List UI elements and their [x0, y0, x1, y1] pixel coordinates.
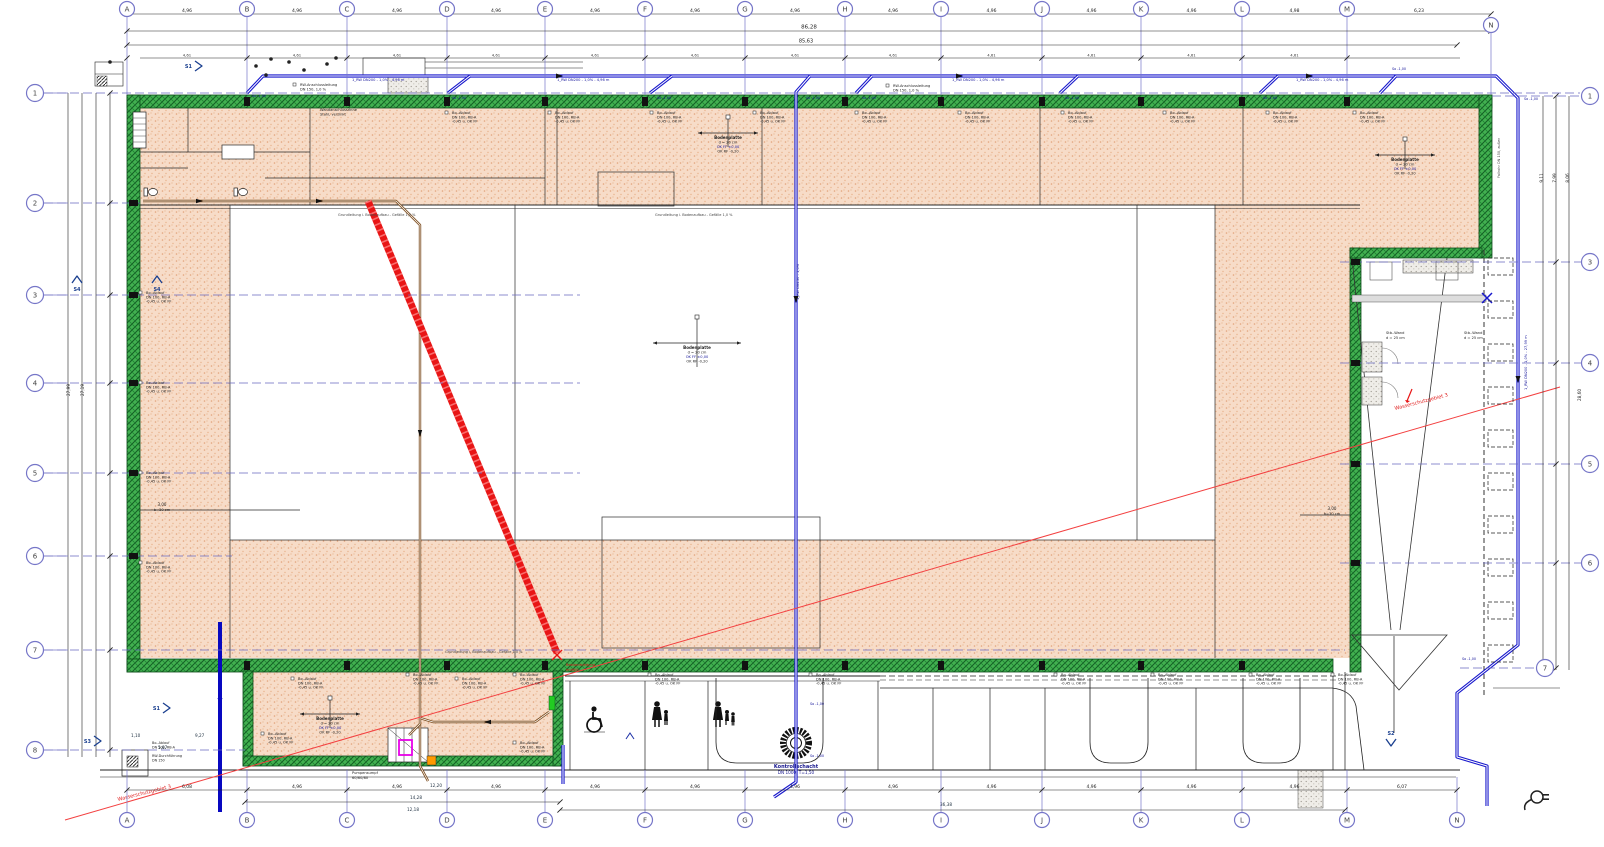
protection-zone-label: Wasserschutzgebiet 3: [117, 784, 172, 803]
wall-column: [444, 97, 450, 106]
dim-text: 4,96: [392, 8, 402, 14]
wall-column: [129, 292, 138, 298]
svg-text:DN 150: DN 150: [152, 759, 165, 763]
dim-text: OK RF -0,20: [319, 731, 341, 735]
svg-text:RW-Durchführung: RW-Durchführung: [152, 754, 182, 758]
grid-label: 1: [33, 90, 37, 98]
wall-column: [938, 97, 944, 106]
dim-text: 4,96: [986, 784, 996, 790]
dashed-bay-outline: [1488, 301, 1513, 318]
slab-label: Bodenplatte: [683, 345, 711, 350]
note-anchor: [648, 673, 651, 676]
note-text: -0,45 u. OK FF: [1068, 120, 1093, 124]
grid-label: M: [1344, 6, 1350, 14]
section-label: S1: [185, 64, 193, 70]
note-text: -0,45 u. OK FF: [462, 686, 487, 690]
pipe-label: 1_RW DN200 - 1,0% - 4,96 m: [352, 78, 405, 82]
wall-column: [642, 97, 648, 106]
svg-text:Grundleitung i. Bodenaufbau -: Grundleitung i. Bodenaufbau - Gefälle 1,…: [445, 650, 523, 654]
wheelchair-icon: [584, 706, 605, 732]
slab-annotation: [695, 315, 699, 319]
dim-text: 4,96: [1289, 784, 1299, 790]
dashed-bay-outline: [1488, 430, 1513, 447]
section-marker-S3: [94, 736, 101, 746]
invert-level-label: So -1,00: [862, 96, 876, 100]
grid-label: 8: [33, 747, 37, 755]
wall-column: [1039, 97, 1045, 106]
dim-text: 4,96: [1086, 784, 1096, 790]
grid-label: C: [345, 6, 350, 14]
note-anchor: [139, 561, 142, 564]
dim-text: 4,96: [1086, 8, 1096, 14]
note-text: -0,45 u. OK FF: [1338, 682, 1363, 686]
dim-text: 4,61: [591, 53, 600, 58]
note-anchor: [1151, 673, 1154, 676]
pipe-label: 1_RW DN200 - 1,0% - 4,96 m: [1296, 78, 1349, 82]
svg-text:d = 25 cm: d = 25 cm: [1386, 336, 1405, 340]
dim-text: 27,19: [80, 384, 85, 396]
dim-text: 7,99: [1552, 173, 1557, 183]
dim-text: 4,61: [183, 53, 192, 58]
dim-text: 12,20: [430, 783, 442, 788]
note-anchor: [855, 111, 858, 114]
wall-column: [842, 97, 848, 106]
note-anchor: [1163, 111, 1166, 114]
dim-text: 4,96: [590, 784, 600, 790]
grid-label: L: [1240, 6, 1244, 14]
dim-text: 27,99: [66, 384, 71, 396]
dim-text: 4,61: [1290, 53, 1299, 58]
slab-annotation: [1403, 137, 1407, 141]
wall-bottom: [127, 659, 1333, 672]
note-text: -0,45 u. OK FF: [268, 741, 293, 745]
slab-annotation: [726, 115, 730, 119]
rw-pipe-branch-core: [448, 76, 470, 93]
dim-text: 4,61: [293, 53, 302, 58]
note-anchor: [958, 111, 961, 114]
note-text: -0,45 u. OK FF: [298, 686, 323, 690]
section-label: S1: [153, 706, 161, 712]
note-text: DN 150, 1,0 %: [300, 87, 327, 91]
grid-label: 6: [1588, 560, 1593, 568]
rw-pipe-branch-core: [856, 76, 872, 93]
rw-pipe-branch-core: [650, 76, 672, 93]
svg-text:Stahl, verzinkt: Stahl, verzinkt: [320, 113, 347, 117]
dim-text: 4,61: [492, 53, 501, 58]
wall-column: [1351, 360, 1360, 366]
grid-label: 4: [33, 380, 38, 388]
plug-icon: [1525, 791, 1549, 810]
note-text: -0,45 u. OK FF: [452, 120, 477, 124]
grid-label: E: [543, 6, 547, 14]
wall-column: [244, 97, 250, 106]
note-anchor: [406, 673, 409, 676]
dim-text: 28,60: [1577, 389, 1582, 401]
note-anchor: [1331, 673, 1334, 676]
dim-text: 4,61: [987, 53, 996, 58]
wall-column: [1138, 661, 1144, 670]
dim-text: 4,96: [292, 8, 302, 14]
note-anchor: [261, 732, 264, 735]
invert-level-label: So -1,00: [1065, 96, 1079, 100]
dim-text: OK FF ±0,00: [319, 726, 342, 730]
ramp-chevron-icon: [626, 733, 634, 739]
grid-label: I: [940, 6, 942, 14]
note-text: -0,45 u. OK FF: [146, 570, 171, 574]
invert-level-label: So -1,00: [810, 754, 824, 758]
orange-drain-marker: [427, 756, 436, 765]
dim-text: OK FF ±0,00: [1394, 167, 1417, 171]
wall-column: [842, 661, 848, 670]
dim-text: 14,28: [410, 795, 422, 800]
grid-label: F: [643, 817, 647, 825]
grid-label: B: [245, 6, 250, 14]
wall-column: [1351, 560, 1360, 566]
dashed-bay-outline: [1488, 258, 1513, 275]
note-anchor: [139, 381, 142, 384]
site-point-marker: [302, 68, 306, 72]
grid-label: H: [842, 817, 847, 825]
pipe-label: 1_RW DN200 - 1,0% - 4,96 m: [557, 78, 610, 82]
dim-text: 6,08: [182, 784, 192, 790]
note-text: -0,45 u. OK FF: [1360, 120, 1385, 124]
note-text: -0,45 u. OK FF: [520, 682, 545, 686]
door-marker-green: [549, 696, 555, 710]
invert-level-label: So -1,00: [1392, 67, 1406, 71]
wall-column: [642, 661, 648, 670]
grid-label: J: [1040, 6, 1043, 14]
ground-pipe-note: Grundleitung i. Bodenaufbau - Gefälle 1,…: [338, 213, 416, 217]
svg-text:b=30 cm: b=30 cm: [154, 508, 171, 512]
note-anchor: [455, 677, 458, 680]
parent-child-icon: [652, 701, 668, 727]
section-label: S4: [73, 287, 81, 293]
dim-text: d = 20 cm: [688, 351, 707, 355]
note-text: -0,45 u. OK FF: [1273, 120, 1298, 124]
wall-column: [244, 661, 250, 670]
slab-annotation: [328, 696, 332, 700]
note-anchor: [139, 471, 142, 474]
grid-label: 4: [1588, 360, 1593, 368]
note-anchor: [548, 111, 551, 114]
dim-text: 6,23: [1414, 8, 1424, 14]
wall-column: [1239, 97, 1245, 106]
note-anchor: [293, 83, 296, 86]
svg-text:85,63: 85,63: [799, 39, 813, 45]
dim-text: 4,96: [491, 784, 501, 790]
dim-text: 4,96: [292, 784, 302, 790]
section-marker-S1: [195, 61, 202, 71]
grid-label: N: [1454, 817, 1459, 825]
svg-text:Grundleitung i. Bodenaufbau -: Grundleitung i. Bodenaufbau - Gefälle 1,…: [655, 213, 733, 217]
svg-text:entfällt: entfällt: [566, 668, 579, 672]
grid-label: N: [1488, 22, 1493, 30]
svg-text:d = 25 cm: d = 25 cm: [1464, 336, 1483, 340]
dim-text: OK FF ±0,00: [686, 355, 709, 359]
wc-icon: [144, 188, 158, 196]
wc-icon: [234, 188, 248, 196]
site-point-marker: [287, 60, 291, 64]
dim-text: 4,61: [889, 53, 898, 58]
grid-label: B: [245, 817, 250, 825]
note-text: -0,45 u. OK FF: [657, 120, 682, 124]
note-text: -0,45 u. OK FF: [816, 682, 841, 686]
note-text: -0,45 u. OK FF: [555, 120, 580, 124]
wall-column: [1239, 661, 1245, 670]
dim-text: 9,27: [195, 733, 205, 738]
note-text: -0,45 u. OK FF: [1170, 120, 1195, 124]
dim-text: OK FF ±0,00: [717, 145, 740, 149]
grid-label: 5: [33, 470, 37, 478]
note-anchor: [513, 673, 516, 676]
section-label: S4: [153, 287, 161, 293]
wall-column: [129, 200, 138, 206]
section-label: S2: [1387, 731, 1395, 737]
protection-zone-label-2: Wasserschutzgebiet 3: [1394, 392, 1449, 412]
svg-text:60/60/80: 60/60/80: [352, 776, 369, 780]
hall-core-outline: [230, 205, 1215, 540]
note-text: -0,45 u. OK FF: [1158, 682, 1183, 686]
invert-level-label: So -1,00: [810, 702, 824, 706]
dim-text: OK RF -0,20: [1394, 172, 1416, 176]
invert-level-label: So -1,00: [657, 96, 671, 100]
invert-level-label: So -1,00: [1263, 96, 1277, 100]
note-text: -0,45 u. OK FF: [655, 682, 680, 686]
grid-label: D: [444, 817, 449, 825]
dashed-bay-outline: [1488, 602, 1513, 619]
dim-text: 4,98: [1289, 8, 1299, 14]
grid-label: 6: [33, 553, 38, 561]
invert-level-label: So -1,00: [452, 96, 466, 100]
grid-label: L: [1240, 817, 1244, 825]
note-anchor: [809, 673, 812, 676]
dashed-bay-outline: [1488, 473, 1513, 490]
section-marker-S4: [72, 276, 82, 283]
grid-label: K: [1139, 817, 1144, 825]
wall-entry-left: [243, 671, 253, 766]
dim-text: d = 20 cm: [321, 722, 340, 726]
grid-label: K: [1139, 6, 1144, 14]
dim-text: d = 20 cm: [1396, 163, 1415, 167]
note-anchor: [1061, 111, 1064, 114]
wall-annex-top: [1350, 248, 1482, 258]
grid-label: 2: [33, 200, 37, 208]
dim-text: 4,96: [182, 8, 192, 14]
dashed-bay-outline: [1488, 344, 1513, 361]
dim-text: 4,96: [590, 8, 600, 14]
site-point-marker: [254, 64, 258, 68]
note-text: -0,45 u. OK FF: [520, 750, 545, 754]
note-text: -0,45 u. OK FF: [965, 120, 990, 124]
note-text: -0,45 u. OK FF: [1061, 682, 1086, 686]
downpipe-note: Fallrohr DN 150, außen: [1497, 138, 1501, 178]
dim-text: 12,18: [407, 807, 419, 812]
demolition-label: Bestandsleitung: [566, 663, 595, 667]
wall-column: [542, 661, 548, 670]
invert-level-label: So -1,00: [806, 96, 820, 100]
wall-column: [129, 553, 138, 559]
grid-label: A: [125, 6, 130, 14]
section-label: S3: [84, 739, 92, 745]
wall-column: [1138, 97, 1144, 106]
note-anchor: [291, 677, 294, 680]
parking-island: [1243, 678, 1300, 763]
grid-label: F: [643, 6, 647, 14]
dim-text: 4,96: [392, 784, 402, 790]
note-text: -0,45 u. OK FF: [1256, 682, 1281, 686]
note-text: -0,45 u. OK FF: [146, 480, 171, 484]
note-text: -0,45 u. OK FF: [760, 120, 785, 124]
dim-text: 4,96: [690, 784, 700, 790]
dim-text: 4,61: [1087, 53, 1096, 58]
grid-label: J: [1040, 817, 1043, 825]
dim-text: 6,07: [1397, 784, 1407, 790]
rw-pipe-branch-core: [1260, 76, 1278, 93]
grid-label: H: [842, 6, 847, 14]
rw-pipe-branch-core: [1060, 76, 1078, 93]
dim-text: 5,87: [158, 745, 168, 750]
dim-text: OK RF -0,20: [717, 150, 739, 154]
wall-column: [542, 97, 548, 106]
dashed-bay-outline: [1488, 516, 1513, 533]
note-anchor: [886, 84, 889, 87]
dim-text: 4,61: [393, 53, 402, 58]
grid-label: A: [125, 817, 130, 825]
note-text: DN 150, 1,0 %: [893, 88, 920, 92]
dim-text: 4,96: [1186, 784, 1196, 790]
wall-column: [1344, 97, 1350, 106]
slab-label: Bodenplatte: [1391, 157, 1419, 162]
wall-annex-east: [1350, 248, 1361, 672]
dim-text: 4,96: [790, 8, 800, 14]
ramp-arrow-head: [1352, 635, 1447, 690]
dim-text: 4,61: [791, 53, 800, 58]
dim-text: 9,11: [1539, 173, 1544, 183]
dim-text: 4,96: [790, 784, 800, 790]
slab-annotation: [653, 341, 657, 344]
dim-text: 4,61: [691, 53, 700, 58]
note-text: -0,45 u. OK FF: [413, 682, 438, 686]
floor-right-band: [1215, 205, 1360, 540]
invert-level-label: So -1,00: [1524, 97, 1538, 101]
floor-bottom-band: [140, 540, 1360, 658]
invert-level-label: So -1,00: [1462, 657, 1476, 661]
section-marker-S2: [1386, 739, 1396, 746]
floorplan-canvas: Kontrollschacht DN 1000, T=1,50 Wassersc…: [0, 0, 1604, 847]
flow-arrow: [418, 430, 422, 437]
wall-column: [1351, 461, 1360, 467]
dashed-bay-outline: [1488, 559, 1513, 576]
note-text: -0,45 u. OK FF: [146, 300, 171, 304]
svg-text:Stb.-Wand: Stb.-Wand: [1464, 331, 1482, 335]
grid-label: 7: [1543, 665, 1547, 673]
grid-label: D: [444, 6, 449, 14]
note-anchor: [513, 741, 516, 744]
dim-text: 4,96: [888, 784, 898, 790]
parking-island: [1090, 678, 1148, 763]
wall-column: [938, 661, 944, 670]
pipe-label-right: 1_RW DN200 - 1,0% - 27,99 m: [1524, 335, 1528, 390]
strip-dim: 3,00: [158, 502, 167, 507]
note-anchor: [650, 111, 653, 114]
grid-label: M: [1344, 817, 1350, 825]
note-anchor: [139, 291, 142, 294]
pipe-label: 1_RW DN200 - 1,0% - 4,96 m: [952, 78, 1005, 82]
grid-label: 7: [33, 647, 37, 655]
slab-annotation: [737, 341, 741, 344]
slab-label: Bodenplatte: [316, 716, 344, 721]
wall-column: [344, 97, 350, 106]
flow-arrow: [1516, 376, 1521, 383]
wall-column: [129, 470, 138, 476]
wall-column: [1039, 661, 1045, 670]
dim-text: 4,96: [888, 8, 898, 14]
svg-text:3,00: 3,00: [1328, 506, 1337, 511]
wall-column: [444, 661, 450, 670]
wall-column: [1351, 259, 1360, 265]
note-anchor: [1054, 673, 1057, 676]
note-text: -0,45 u. OK FF: [146, 390, 171, 394]
grid-label: I: [940, 817, 942, 825]
wall-column: [742, 97, 748, 106]
site-point-marker: [264, 73, 268, 77]
wall-column: [129, 380, 138, 386]
svg-text:b=30 cm: b=30 cm: [1324, 512, 1341, 516]
rw-pipe-branch-core: [1380, 76, 1396, 93]
manhole-label-2: DN 1000, T=1,50: [778, 770, 815, 775]
dim-text: OK RF -0,20: [686, 360, 708, 364]
grid-label: G: [742, 817, 747, 825]
note-anchor: [753, 111, 756, 114]
wall-column: [344, 661, 350, 670]
grid-label: G: [742, 6, 747, 14]
dim-text: 4,96: [1186, 8, 1196, 14]
dim-text: 4,96: [986, 8, 996, 14]
note-text: -0,45 u. OK FF: [862, 120, 887, 124]
note-anchor: [1353, 111, 1356, 114]
wall-right: [1479, 95, 1492, 258]
section-marker-S1: [163, 703, 170, 713]
grid-label: 3: [1588, 259, 1592, 267]
dim-text: 4,96: [690, 8, 700, 14]
grid-label: E: [543, 817, 547, 825]
grid-label: 3: [33, 292, 37, 300]
overall-dimension: 86,28: [801, 25, 817, 31]
note-anchor: [1249, 673, 1252, 676]
ramp-wall-note: Stb.-Wand: [1386, 331, 1404, 335]
dim-text: 1,10: [131, 733, 141, 738]
dim-text: 4,61: [1187, 53, 1196, 58]
invert-level-label: So -1,00: [252, 94, 266, 98]
grid-label: 1: [1588, 93, 1592, 101]
pipe-label-vertical: 1_RW DN150 - 1,0%: [796, 263, 800, 300]
cad-floorplan-sheet: Kontrollschacht DN 1000, T=1,50 Wassersc…: [0, 0, 1604, 847]
dim-text: 36,38: [940, 802, 952, 807]
slab-label: Bodenplatte: [714, 135, 742, 140]
pump-note: Pumpensumpf: [352, 771, 379, 775]
site-point-marker: [108, 60, 112, 64]
note-anchor: [445, 111, 448, 114]
grid-label: 5: [1588, 461, 1592, 469]
site-point-marker: [325, 62, 329, 66]
note-anchor: [1266, 111, 1269, 114]
dim-text: 8,06: [1565, 173, 1570, 183]
wall-channel-note: Wandanschlussrinne: [320, 108, 358, 112]
wall-column: [742, 661, 748, 670]
grid-label: C: [345, 817, 350, 825]
dim-text: d = 20 cm: [719, 141, 738, 145]
dim-text: 4,96: [491, 8, 501, 14]
